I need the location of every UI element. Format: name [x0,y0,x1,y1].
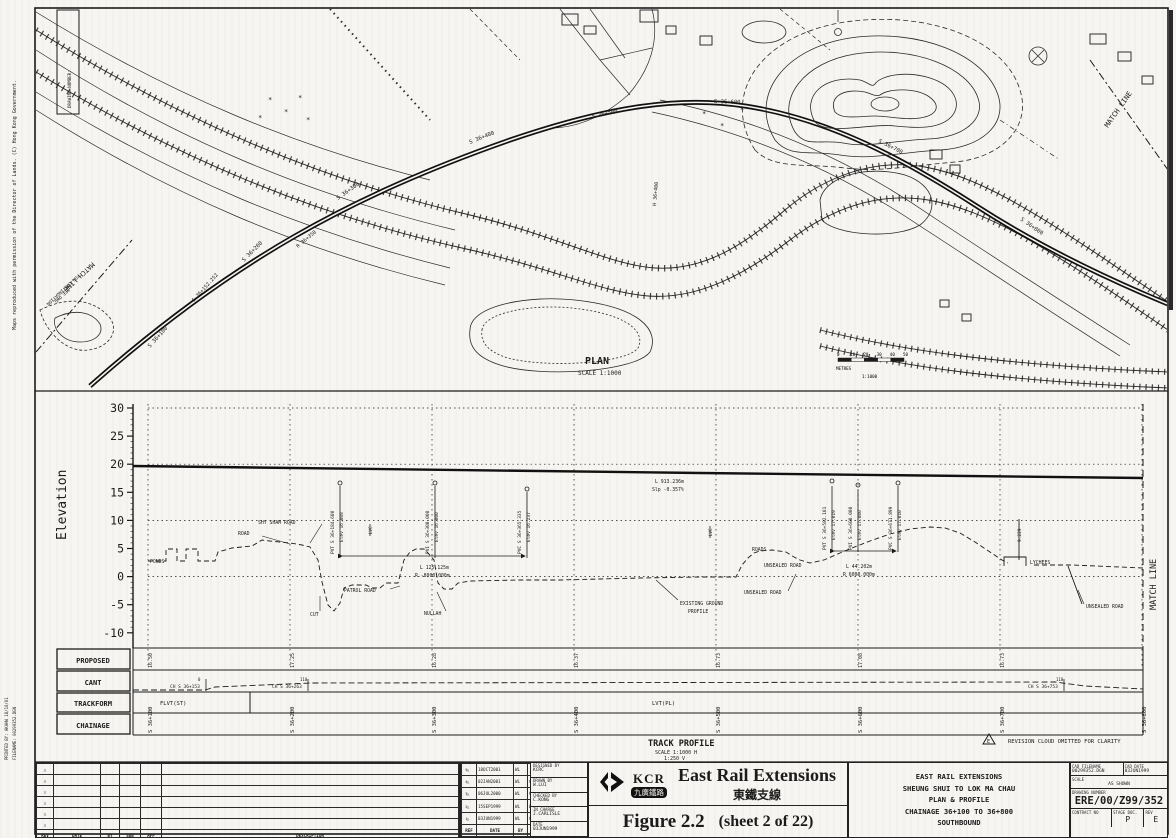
profile-annotation: Elev 16.808 [339,512,345,542]
profile-annotation: SHY SHAM ROAD [258,520,296,526]
revision-ref: △2 [462,800,477,812]
svg-text:*: * [258,114,262,122]
proposed-level-value: 16.28 [432,653,438,668]
plan-label: PLAN [585,356,609,367]
svg-text:*: * [284,108,288,116]
profile-annotation: L 125.125m [420,565,449,571]
cad-filename-value: 00299352.DGN [1072,769,1122,774]
rev-header-cell: BY [101,830,120,838]
chainage-value: S 36+500 [716,707,722,734]
profile-annotation: L 44.202m [846,564,872,570]
plan-label: S 36+400 [469,130,496,145]
signatories-panel: DESIGNED BY KCRC DRAWN BY W.LUI CHECKED … [530,762,588,838]
svg-text:*: * [268,96,272,104]
scale-bar-unit: METRES [836,366,852,371]
cant-value: 110 [300,677,308,682]
profile-ytick: 15 [110,485,124,499]
profile-annotation: UNSEALED ROAD [744,590,782,596]
revision-header-cell: BY [514,824,528,836]
revision-ref: △1 [462,812,477,824]
profile-rows: PROPOSEDCANTTRACKFORMCHAINAGE16.5017.251… [57,648,1148,735]
revision-date: 18OCT2001 [477,764,514,776]
signatory-value: 03JUN1999 [533,827,585,832]
profile-annotation: EXISTING GROUND [680,601,723,607]
profile-annotation: Slp -0.357% [652,487,684,493]
margin-filename: FILENAME: 00299352.DGN [12,706,17,760]
revision-ref: △3 [462,788,477,800]
signatory-value: W.LUI [533,783,585,788]
svg-text:*: * [740,106,744,114]
svg-text:*: * [720,122,724,130]
plan-label: SCALE 1:1000 [578,370,622,377]
logo-figure-block: KCR 九廣鐵路 East Rail Extensions 東鐵支線 Figur… [588,762,848,838]
profile-annotation: ROADS [752,547,767,553]
scale-bar-segment [891,358,904,362]
signatory-row: CHECKED BY C.KONG [531,793,587,808]
empty-rev-row: △ [37,797,459,808]
chainage-value: S 36+400 [574,707,580,734]
plan-label: S 36+500 [591,109,618,120]
profile-match-line-label: MATCH LINE [1149,559,1159,610]
proposed-level-value: 16.73 [1000,653,1006,668]
drawing-number-value: ERE/00/Z99/352 [1072,795,1166,807]
empty-rev-row: △ [37,808,459,819]
profile-annotation: UNSEALED ROAD [764,563,802,569]
profile-proposed-rail-line [133,466,1143,478]
profile-ytick: 5 [117,542,124,556]
revision-date: 06JUL2000 [477,788,514,800]
scale-bar-segment [864,358,877,362]
chainage-value: S 36+100 [148,707,154,734]
proposed-level-value: 16.50 [148,653,154,668]
profile-ytick: -5 [110,598,124,612]
plan-existing-track-bands [36,30,1168,388]
revision-by: WL [514,788,528,800]
scale-bar-tick: 50 [903,352,909,357]
revision-date: 03JUN1999 [477,812,514,824]
rev-header-cell: APP [141,830,162,838]
empty-rev-row: △ [37,786,459,797]
track-profile-title: TRACK PROFILE [648,739,715,749]
profile-annotation: Elev 17.019 [831,510,837,540]
proposed-level-value: 16.73 [716,653,722,668]
plan-proposed-alignment [90,102,1168,386]
project-name-zh: 東鐵支線 [733,786,781,803]
plan-label: S 36+600 [714,99,741,106]
signatory-value: KCRC [533,768,585,773]
plan-label: H 36+400 [652,182,660,207]
chainage-value: S 36+300 [432,707,438,734]
plan-match-lines [36,60,1168,352]
revision-header-cell: DATE [477,824,514,836]
proposed-level-value: 16.37 [574,653,580,668]
scale-bar-segment [838,358,851,362]
svg-text:*: * [298,94,302,102]
profile-annotation: PROFILE [688,609,708,615]
empty-rev-row: △ [37,775,459,786]
stage-doc-value: P [1113,815,1142,824]
revision-note: REVISION CLOUD OMITTED FOR CLARITY [1008,739,1121,745]
profile-ytick: -10 [103,626,124,640]
chainage-value: S 36+200 [290,707,296,734]
scale-bar-tick: 0 [837,352,840,357]
rev-value: E [1145,815,1166,824]
revision-by: WL [514,776,528,788]
row-label-proposed: PROPOSED [76,657,110,665]
profile-annotation: Elev 16.237 [526,512,532,542]
cant-chainage: CH S 36+753 [1028,684,1058,690]
profile-annotation: UNSEALED ROAD [1086,604,1124,610]
profile-annotation: L 913.236m [655,479,684,485]
plan-label: S 36+300 [336,182,361,202]
project-name-en: East Rail Extensions [678,765,836,786]
signatory-value: J.CARLISLE [533,812,585,817]
row-label-chainage: CHAINAGE [76,722,110,730]
profile-annotation: Elev 16.000 [434,512,440,542]
plan-drawing-number-label: DRAWING NUMBER: [67,70,72,108]
cant-value: 0 [198,677,201,682]
scale-bar-segment [851,358,864,362]
profile-annotation: LYCHEES [1030,560,1050,566]
profile-annotation: PVI S 36+300.000 [425,510,431,554]
chainage-value: S 36+800 [1142,707,1148,734]
profile-annotation: Elev 17.010 [897,510,903,540]
profile-ytick: 0 [117,570,124,584]
margin-copyright: Maps reproduced with permission of the D… [12,80,18,330]
revision-ref: △5 [462,764,477,776]
row-texts: PROPOSEDCANTTRACKFORMCHAINAGE16.5017.251… [74,653,1148,733]
signatory-value: C.KONG [533,798,585,803]
rev-header-row: REVDATEBYSUBAPPDESCRIPTION [37,830,459,838]
rev-triangle-cell: △ [37,786,54,797]
profile-ytick: 25 [110,429,124,443]
profile-ytick: 30 [110,401,124,415]
scale-bar-tick: 40 [890,352,896,357]
rev-header-cell: SUB [120,830,141,838]
scale-bar-segment [878,358,891,362]
drawing-title-line: SOUTHBOUND [903,817,1016,829]
trackform-segment: LVT(PL) [652,701,675,707]
rev-triangle-cell: △ [37,764,54,775]
profile-annotation: Elev 17.000 [857,510,863,540]
profile-view: 302520151050-5-10ElevationMATCH LINEPOND… [55,401,1159,668]
profile-grid [127,404,1143,668]
rev-triangle-cell: △ [37,797,54,808]
plan-tree-symbols: *** ** *** [258,94,744,130]
figure-sheet: (sheet 2 of 22) [719,813,814,831]
revision-by: WL [514,764,528,776]
drawing-sheet: *** ** *** PLANSCALE 1:1000MATCH LINEMAT… [0,0,1176,838]
cad-panel: CAD FILENAME 00299352.DGN CAD DATE 03JUN… [1070,762,1168,838]
profile-annotation: PVT S 36+582.101 [822,506,828,550]
profile-annotation: PONDS [150,559,165,565]
revision-by: WL [514,800,528,812]
profile-ylabel: Elevation [55,470,70,540]
profile-annotation: LVC [708,528,713,536]
drawing-title-line: CHAINAGE 36+100 TO 36+800 [903,806,1016,818]
profile-annotation: LVC [368,526,373,534]
profile-rows-grid [57,648,1143,735]
profile-vc-markers [338,479,900,558]
signatory-row: DRAWN BY W.LUI [531,778,587,793]
rev-header-cell: REV [37,830,54,838]
scale-bar-tick: 10 [850,352,856,357]
drawing-title-line: PLAN & PROFILE [903,794,1016,806]
empty-revision-table: △ △ △ △ △ △ REVDATEBYSUBAPPDESCRIPTION [35,762,460,838]
drawing-title-panel: EAST RAIL EXTENSIONSSHEUNG SHUI TO LOK M… [848,762,1070,838]
chainage-value: S 36+600 [858,707,864,734]
cant-chainage: CH S 36+263 [272,684,302,690]
kcr-logo-chinese: 九廣鐵路 [631,787,667,798]
revision-date: 02JAN2001 [477,776,514,788]
kcr-logo-text: KCR [633,771,665,787]
drawing-title-line: EAST RAIL EXTENSIONS [903,771,1016,783]
drawing-linework: *** ** *** PLANSCALE 1:1000MATCH LINEMAT… [0,0,1176,838]
row-label-trackform: TRACKFORM [74,700,112,708]
rev-header-cell: DATE [54,830,101,838]
plan-label: MATCH LINE [1103,90,1134,129]
rev-header-cell: DESCRIPTION [162,830,459,838]
profile-annotation: 9.229 [1017,528,1023,542]
contract-no-label: CONTRACT NO [1072,810,1110,815]
revision-date: 15SEP1999 [477,800,514,812]
profile-ytick: 20 [110,457,124,471]
profile-annotation: CUT [310,612,319,618]
drawing-title-line: SHEUNG SHUI TO LOK MA CHAU [903,783,1016,795]
cant-value: 110 [1056,677,1064,682]
cant-chainage: CH S 36+153 [170,684,200,690]
kcr-logo-icon [597,770,627,798]
chainage-value: S 36+700 [1000,707,1006,734]
svg-text:*: * [702,110,706,118]
signatory-row: DATE 03JUN1999 [531,822,587,837]
scale-bar-ratio: 1:1000 [862,374,878,379]
proposed-level-value: 17.25 [290,653,296,668]
revision-triangle-ref: E [987,739,990,745]
profile-annotation: ROAD [238,531,250,537]
row-label-cant: CANT [85,679,102,687]
scale-bar-tick: 30 [877,352,883,357]
margin-printed-by: PRINTED BY: AKAHW 18/10/01 [4,697,9,760]
trackform-segment: FLVT(ST) [160,701,187,707]
revision-ref: △4 [462,776,477,788]
profile-annotation: PVC S 36+671.899 [888,506,894,550]
signatory-row: DESIGNED BY KCRC [531,763,587,778]
profile-annotation: R 6000.000m [843,572,875,578]
figure-number: Figure 2.2 [623,811,705,833]
profile-annotation: PATROL ROAD [344,588,376,594]
proposed-level-value: 17.08 [858,653,864,668]
profile-annotation: PVT S 36+184.600 [330,510,336,554]
cad-date-value: 03JUN1999 [1125,769,1166,774]
plan-scale-bar: 01020304050METRES1:1000 [836,352,909,379]
rev-triangle-cell: △ [37,819,54,830]
profile-annotation: NULLAH [424,611,441,617]
plan-roads-nw [36,9,1130,356]
profile-annotation: PVI S 36+600.000 [848,506,854,550]
profile-existing-ground [148,519,1143,611]
revision-header-cell: REF [462,824,477,836]
profile-ytick: 10 [110,513,124,527]
signatory-row: IN CHARGE J.CARLISLE [531,807,587,822]
empty-rev-row: △ [37,764,459,775]
scale-bar-tick: 20 [863,352,869,357]
empty-rev-row: △ [37,819,459,830]
rev-triangle-cell: △ [37,775,54,786]
plan-view: *** ** *** [36,9,1168,388]
profile-annotation: R -8000.000m [415,573,450,579]
misc-texts: TRACK PROFILESCALE 1:1000 H1:250 VEREVIS… [4,80,1121,762]
rev-triangle-cell: △ [37,808,54,819]
revision-by: WL [514,812,528,824]
profile-annotation: PVC S 36+365.335 [517,510,523,554]
scale-value: AS SHOWN [1072,782,1166,787]
svg-text:*: * [306,116,310,124]
